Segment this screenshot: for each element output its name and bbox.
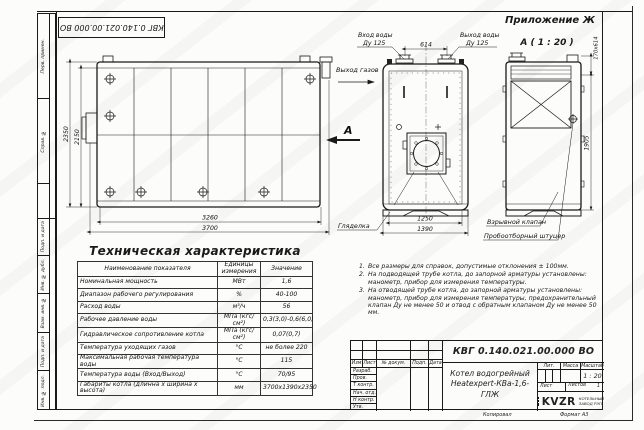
tb-lit-header: Лит. [538,363,561,370]
tb-sig-col [411,368,429,411]
gas-out-label: Выход газов [336,66,379,74]
tb-sig-col [429,368,443,411]
tech-table-row: Температура воды (Вход/Выход) °С 70/95 [78,369,313,381]
tech-cell-value: 70/95 [261,369,313,381]
tb-col-data: Дата [429,360,443,368]
note-number: 2. [356,271,368,286]
right-view [483,53,594,240]
note-item: 1. Все размеры для справок, допустимые о… [356,263,602,270]
tech-table-row: Температура уходящих газов °С не более 2… [78,342,313,354]
dim-1250-text: 1250 [417,216,433,223]
burner-flange [403,133,450,174]
format-label: Формат А3 [560,412,588,418]
tb-rev-cell [411,341,429,351]
view-a-letter: А [343,124,353,137]
tech-cell-unit: МВт [218,277,261,289]
note-number: 3. [356,287,368,317]
tech-cell-unit: °С [218,369,261,381]
tb-lit-box [546,370,554,383]
tb-sig-col [377,368,411,411]
tech-table-row: Номинальная мощность МВт 1,6 [78,277,313,289]
tb-name-line2: Heatexpert-КВа-1,6-ГЛЖ [443,379,537,400]
tech-cell-unit: МПа (кгс/см²) [218,328,261,342]
tb-rev-cell [429,341,443,351]
dim-170x614 [581,56,594,75]
tb-row-nachotd: Нач. отд. [351,390,377,397]
tb-sheets-value: 1 [597,383,604,389]
water-out-leader [448,47,497,59]
tech-cell-unit: МПа (кгс/см²) [218,313,261,327]
water-in-leader [357,47,404,59]
tech-cell-value: 3700х1390х2350 [261,381,313,395]
tech-table-row: Рабочее давление воды МПа (кгс/см²) 0,3(… [78,313,313,327]
water-out-pipe [438,55,455,63]
tech-cell-value: 56 [261,301,313,313]
tech-table-header-row: Наименование показателя Единицы измерени… [78,262,313,277]
tech-cell-value: 115 [261,355,313,369]
note-number: 1. [356,263,368,270]
tech-cell-name: Диапазон рабочего регулирования [78,289,218,301]
note-text: На отводящей трубе котла, до запорной ар… [368,287,602,317]
tech-cell-value: 1,6 [261,277,313,289]
tech-table-row: Габариты котла (длинна х ширина х высота… [78,381,313,395]
tb-lit-box [553,370,561,383]
side-view [66,56,374,235]
tech-cell-name: Температура уходящих газов [78,342,218,354]
tb-rev-cell [351,341,363,351]
title-block: Изм Лист № докум. Подп. Дата Разраб. Про… [350,340,603,410]
tb-scale-header: Масштаб [581,363,604,370]
tb-sheet-cell: Лист [538,383,566,392]
tb-mass-value [561,370,581,383]
tb-col-list: Лист [363,360,377,368]
tech-table: Наименование показателя Единицы измерени… [77,261,313,396]
tb-row-tkontr: Т контр. [351,382,377,389]
tb-sheets-label: Листов [566,383,587,388]
sampling-fitting [568,114,578,124]
tb-rev-cell [363,341,377,351]
tech-cell-name: Габариты котла (длинна х ширина х высота… [78,381,218,395]
tech-cell-name: Номинальная мощность [78,277,218,289]
dim-2350-text: 2350 [63,126,70,142]
view-a-arrow [326,136,360,144]
tb-row-nkontr: Н контр. [351,397,377,404]
tech-cell-name: Расход воды [78,301,218,313]
dim-2150-text: 2150 [74,129,81,145]
note-item: 2. На подводящей трубе котла, до запорно… [356,271,602,286]
bolt-marks [104,73,316,198]
water-out-label: Выход воды [460,32,500,39]
dim-170x614-text: 170х614 [594,36,600,59]
kvzr-logo-text: KVZR [542,396,576,408]
company-line2: ЗАВОД РЭП [579,402,604,406]
tech-header-units: Единицы измерения [218,262,261,277]
tech-cell-value: 0,3(3,0)-0,6(6,0) [261,313,313,327]
kvzr-logo-icon [538,397,539,406]
dim-1905-text: 1905 [584,135,591,150]
tb-rev-cell [429,351,443,361]
note-text: Все размеры для справок, допустимые откл… [368,263,569,270]
dim-614-text: 614 [420,42,432,49]
tb-logo-cell: KVZR КОТЕЛЬНЫЙ ЗАВОД РЭП [538,392,604,411]
copied-label: Копировал [483,412,512,418]
tech-cell-value: 0,07(0,7) [261,328,313,342]
tb-sheets-cell: Листов 1 [566,383,604,392]
tech-cell-unit: % [218,289,261,301]
tech-cell-name: Температура воды (Вход/Выход) [78,369,218,381]
tb-col-dokum: № докум. [377,360,411,368]
tech-cell-value: не более 220 [261,342,313,354]
tb-doc-number: КВГ 0.140.021.00.000 ВО [443,341,604,363]
tb-col-izm: Изм [351,360,363,368]
tb-row-prov: Пров. [351,375,377,382]
tech-cell-unit: °С [218,355,261,369]
tb-rev-cell [363,351,377,361]
tech-cell-name: Максимальная рабочая температура воды [78,355,218,369]
dim-2350 [66,62,97,207]
hatch-panel [511,81,571,128]
tb-col-podp: Подп. [411,360,429,368]
tb-row-razrab: Разраб. [351,368,377,375]
water-in-pipe [396,55,413,63]
tech-cell-value: 40-100 [261,289,313,301]
tech-table-row: Максимальная рабочая температура воды °С… [78,355,313,369]
water-out-dn: Ду 125 [465,40,488,47]
tech-cell-name: Гидравлическое сопротивление котла [78,328,218,342]
tech-cell-unit: мм [218,381,261,395]
tb-scale-value: 1 : 20 [581,370,604,383]
note-item: 3. На отводящей трубе котла, до запорной… [356,287,602,317]
tb-rev-cell [377,341,411,351]
tb-row-utv: Утв. [351,404,377,411]
tech-cell-unit: °С [218,342,261,354]
right-view-pipe [509,53,525,61]
water-in-dn: Ду 125 [362,40,385,47]
tb-product-name: Котел водогрейный Heatexpert-КВа-1,6-ГЛЖ [443,363,538,411]
dim-3260-text: 3260 [202,215,218,222]
dim-1390-text: 1390 [417,226,433,233]
tb-lit-box [538,370,546,383]
dim-3700 [90,80,329,235]
note-text: На подводящей трубе котла, до запорной а… [368,271,602,286]
tech-cell-unit: м³/ч [218,301,261,313]
water-in-label: Вход воды [358,32,393,39]
tb-rev-cell [351,351,363,361]
tech-table-row: Расход воды м³/ч 56 [78,301,313,313]
tb-mass-header: Масса [561,363,581,370]
tech-header-name: Наименование показателя [78,262,218,277]
dim-3700-text: 3700 [202,225,218,232]
tb-rev-cell [377,351,411,361]
explosion-valve-label: Взрывной клапан [487,218,546,226]
sight-glass-label: Гляделка [338,222,370,230]
drawing-sheet: { "doc": { "stamp_top_rotated": "КВГ 0.1… [0,0,644,430]
tech-cell-name: Рабочее давление воды [78,313,218,327]
tech-header-value: Значение [261,262,313,277]
tech-table-row: Диапазон рабочего регулирования % 40-100 [78,289,313,301]
tb-name-line1: Котел водогрейный [443,369,537,379]
tech-table-row: Гидравлическое сопротивление котла МПа (… [78,328,313,342]
tb-rev-cell [411,351,429,361]
notes-list: 1. Все размеры для справок, допустимые о… [356,263,602,318]
sampling-fitting-label: Пробоотборный штуцер [484,232,565,240]
